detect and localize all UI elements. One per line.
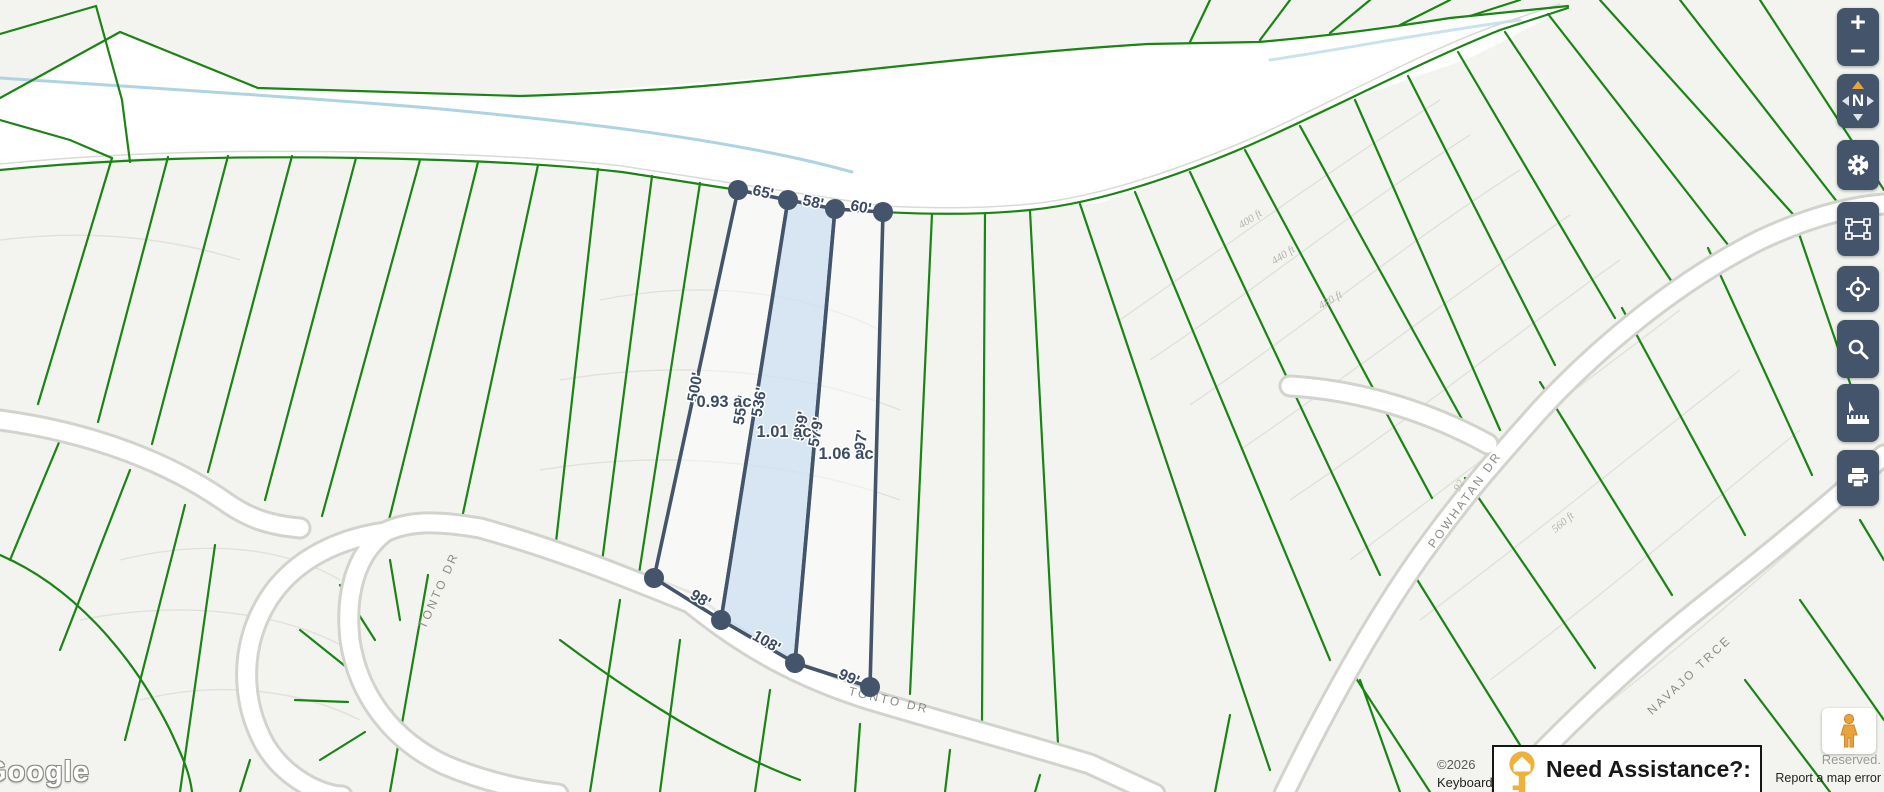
area-label-1: 1.01 ac <box>756 423 811 441</box>
search-button[interactable] <box>1837 320 1879 378</box>
map-canvas[interactable]: TONTO DR TONTO DR POWHATAN DR NAVAJO TRC… <box>0 0 1884 792</box>
search-icon <box>1845 336 1871 362</box>
need-assistance-banner[interactable]: Need Assistance?: <box>1492 745 1762 792</box>
map-application: TONTO DR TONTO DR POWHATAN DR NAVAJO TRC… <box>0 0 1884 792</box>
print-button[interactable] <box>1837 450 1879 506</box>
gold-key-icon <box>1502 750 1542 792</box>
pegman-button[interactable] <box>1822 708 1876 754</box>
crosshair-icon <box>1845 276 1871 302</box>
rights-text: Reserved. <box>1763 752 1881 767</box>
compass-control[interactable]: N <box>1837 74 1879 128</box>
report-map-error-link[interactable]: Report a map error <box>1763 771 1881 785</box>
settings-button[interactable] <box>1837 140 1879 190</box>
marquee-select-icon <box>1844 217 1872 241</box>
compass-north-arrow-icon[interactable] <box>1852 81 1864 89</box>
compass-west-arrow-icon[interactable] <box>1842 96 1849 106</box>
measure-button[interactable] <box>1837 384 1879 442</box>
pegman-icon <box>1836 713 1862 749</box>
gear-icon <box>1845 152 1871 178</box>
google-logo[interactable]: Google <box>0 756 90 789</box>
compass-south-arrow-icon[interactable] <box>1853 114 1863 121</box>
marquee-select-button[interactable] <box>1837 202 1879 256</box>
area-label-0: 0.93 ac <box>696 393 751 411</box>
zoom-out-button[interactable]: − <box>1837 37 1879 66</box>
area-label-2: 1.06 ac <box>818 445 873 463</box>
map-attribution-right: Reserved. Report a map error <box>1763 752 1881 785</box>
print-icon <box>1844 465 1872 491</box>
measure-ruler-icon <box>1844 399 1872 427</box>
zoom-control: + − <box>1837 8 1879 66</box>
locate-button[interactable] <box>1837 266 1879 312</box>
zoom-in-button[interactable]: + <box>1837 8 1879 37</box>
need-assistance-label: Need Assistance?: <box>1546 756 1751 783</box>
compass-n-label: N <box>1852 91 1864 111</box>
compass-east-arrow-icon[interactable] <box>1867 96 1874 106</box>
